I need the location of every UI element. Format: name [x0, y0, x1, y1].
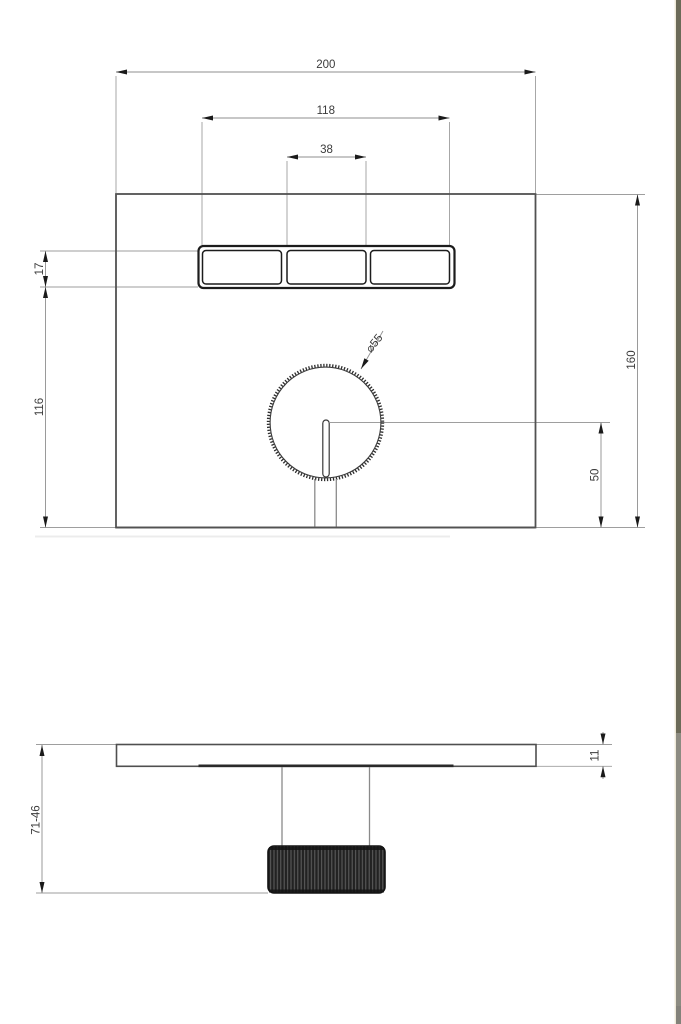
dim-label-knob-center-to-plate-bottom: 50 [590, 469, 602, 482]
extension-lines [36, 76, 645, 893]
dim-label-plate-width: 200 [316, 59, 335, 71]
button-left [203, 251, 282, 285]
dim-label-button-width: 38 [320, 144, 333, 156]
scrollbar-track-end[interactable] [676, 1006, 681, 1024]
dim-label-buttons-to-plate-bottom: 116 [34, 398, 46, 416]
dim-label-plate-height: 160 [626, 350, 638, 369]
technical-drawing-page: 200 118 38 17 116 160 50 ⌀55 11 71-46 [0, 0, 681, 1024]
scrollbar-divider-line [675, 0, 676, 1024]
dim-label-installation-depth-range: 71-46 [31, 805, 43, 834]
dim-label-button-height: 17 [34, 263, 46, 276]
button-right [371, 251, 450, 285]
button-middle [287, 251, 366, 285]
side-view [117, 745, 537, 894]
side-knob-knurled-body [268, 846, 385, 893]
dim-label-plate-thickness: 11 [590, 750, 602, 762]
dim-label-buttons-span: 118 [317, 105, 335, 117]
technical-drawing-canvas: 200 118 38 17 116 160 50 ⌀55 11 71-46 [0, 0, 681, 1024]
dimension-lines [42, 72, 638, 893]
side-knob-bottom-band [269, 890, 384, 893]
right-edge-scrollbar[interactable] [675, 0, 681, 1024]
side-plate-outline [117, 745, 537, 767]
scrollbar-track-lower[interactable] [676, 733, 681, 1006]
front-view [116, 194, 536, 528]
knob-lever-slot [323, 420, 329, 477]
dim-label-knob-diameter: ⌀55 [364, 332, 386, 355]
side-knob-top-band [269, 847, 384, 850]
dimension-labels: 200 118 38 17 116 160 50 ⌀55 11 71-46 [31, 59, 639, 835]
